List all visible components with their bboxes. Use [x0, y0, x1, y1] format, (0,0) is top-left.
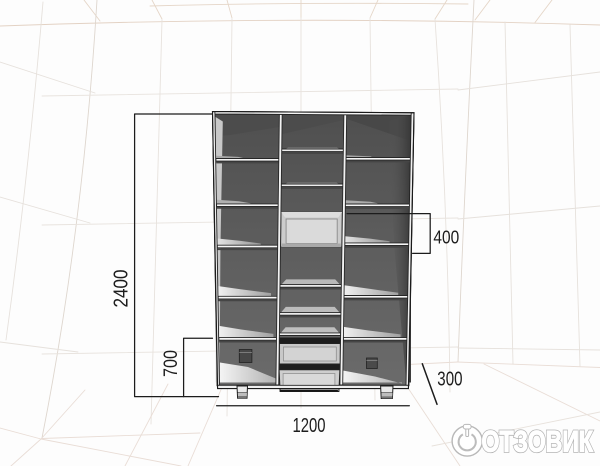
svg-text:700: 700 — [161, 350, 182, 377]
svg-text:2400: 2400 — [110, 270, 133, 308]
svg-text:300: 300 — [437, 367, 462, 390]
svg-text:ОТЗОВИК: ОТЗОВИК — [482, 426, 594, 459]
svg-text:1200: 1200 — [293, 414, 326, 437]
svg-text:400: 400 — [433, 226, 459, 247]
